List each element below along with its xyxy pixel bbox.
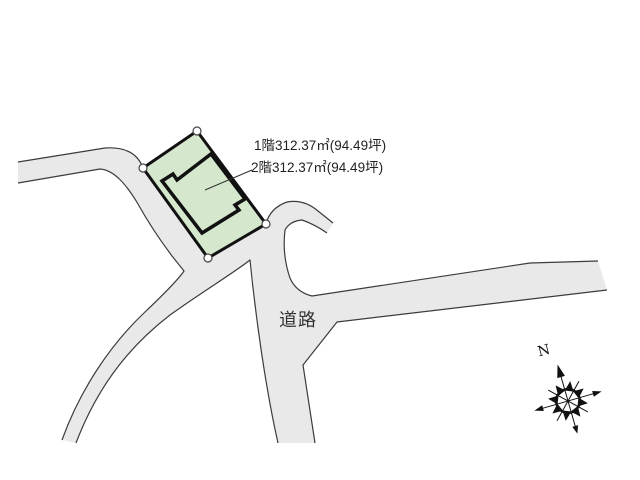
corner-marker-west [139, 164, 147, 172]
compass-rose-icon [524, 355, 611, 444]
compass-east-arrowhead [592, 388, 602, 396]
site-plan-canvas: 1階312.37㎡(94.49坪) 2階312.37㎡(94.49坪) 道路 N [0, 0, 640, 480]
corner-marker-north [193, 127, 201, 135]
compass-west-arrowhead [534, 405, 544, 413]
compass-cross-lines [529, 360, 606, 439]
corner-marker-south [204, 254, 212, 262]
compass-north-arrowhead [554, 363, 565, 378]
floor1-area-label: 1階312.37㎡(94.49坪) [254, 139, 386, 154]
site-plan-drawing [0, 0, 640, 480]
corner-marker-east [262, 220, 270, 228]
floor2-area-label: 2階312.37㎡(94.49坪) [251, 161, 383, 176]
road-label: 道路 [279, 311, 317, 331]
compass-south-arrowhead [572, 425, 580, 434]
